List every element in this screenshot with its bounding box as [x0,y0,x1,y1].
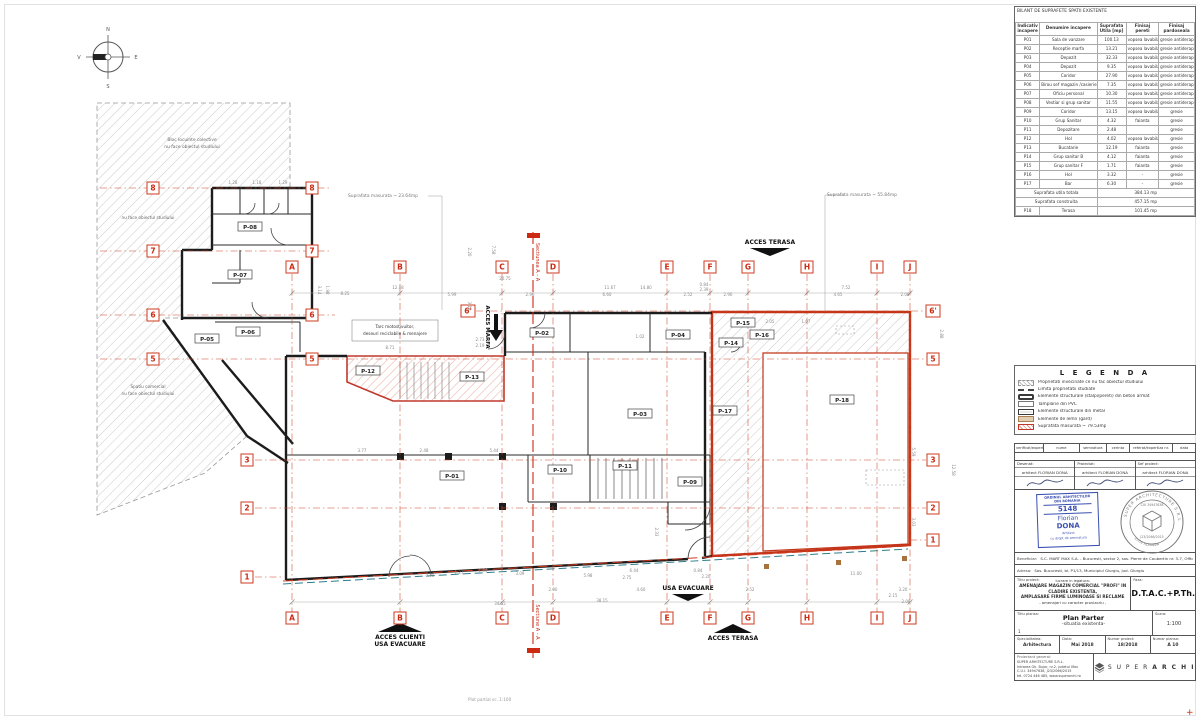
dim-label: 20.75 [499,276,511,281]
table-cell: gresie antiderapanta [1159,53,1195,62]
role-column: Sef proiect:arhitect FLORIAN DONA [1136,461,1195,489]
section-label-bottom: Sectiune A - A [534,604,540,640]
grid-bubble-label-3: 3 [244,456,249,465]
grid-bubble-label-I: I [876,614,879,623]
room-label-P-08: P-08 [243,225,257,231]
verif-header: semnatura [1080,444,1107,452]
table-cell: Bucatarie [1040,143,1097,152]
dim-label: 8.25 [341,291,350,296]
project-line1: AMENAJARE MAGAZIN COMERCIAL "PROFI" IN C… [1017,583,1128,594]
table-cell: gresie antiderapanta [1159,71,1195,80]
table-cell: P18 [1016,206,1040,215]
dim-label: 2.20 [702,574,711,579]
table-cell: Vestiar si grup sanitar [1040,98,1097,107]
table-cell: gresie [1159,152,1195,161]
table-cell: gresie [1159,125,1195,134]
table-cell: gresie antiderapanta [1159,80,1195,89]
acces-clienti-2: USA EVACUARE [374,641,425,648]
dim-label: 12.58 [951,464,956,476]
dim-label: 1.29 [279,180,288,185]
table-cell: - [1126,170,1159,179]
dim-label: 2.33 [654,528,659,537]
dim-label: 34.55 [494,601,506,606]
dim-label: 5.99 [448,292,457,297]
dim-label: 3.20 [899,587,908,592]
table-cell: P08 [1016,98,1040,107]
table-cell: Bar [1040,179,1097,188]
project-line2: AMPLASARE FIRME LUMINOASE SI RECLAME [1017,594,1128,599]
table-cell: - [1126,179,1159,188]
cube-icon [1143,511,1161,531]
legend-label: Limita proprietatii studiate [1038,387,1095,392]
oar-stamp: ORDINUL ARHITECTILOR DIN ROMANIA 5148 Fl… [1036,492,1100,548]
legend-item: Suprafata masurata ~ 79.53mp [1018,424,1192,430]
dim-label: 11.00 [850,571,862,576]
table-row: P16Hol3.32-gresie [1016,170,1195,179]
table-cell: 12.19 [1097,143,1126,152]
table-cell: vopsea lavabila [1126,44,1159,53]
adresa-label: Adresa: [1017,568,1031,573]
dim-label: 4.65 [834,292,843,297]
table-cell: gresie [1159,161,1195,170]
grid-bubble-label-G: G [745,614,751,623]
role-column: Desenat:arhitect FLORIAN DONA [1015,461,1075,489]
verification-row: verificat/expertnumesemnaturacerintarefe… [1015,444,1195,453]
surface-table: Indicativ incapereDenumire incapereSupra… [1015,22,1195,216]
phase-cell: Faza: D.T.A.C.+P.Th. [1131,577,1195,610]
table-cell: P13 [1016,143,1040,152]
table-row: P02Receptie marfa13.21vopsea lavabilagre… [1016,44,1195,53]
dim-label: 11.67 [604,285,616,290]
dim-label: 7.52 [842,285,851,290]
table-row: P15Grup sanitar F1.71faiantagresie [1016,161,1195,170]
grid-bubble-label-H: H [804,263,810,272]
role-label: Sef proiect: [1136,461,1195,468]
table-cell: 32.33 [1097,53,1126,62]
table-cell: P02 [1016,44,1040,53]
table-row: P05Coridor27.90vopsea lavabilagresie ant… [1016,71,1195,80]
room-label-P-11: P-11 [618,464,632,470]
acces-marfa: ACCES MARFA [484,305,490,349]
table-cell: 10.30 [1097,89,1126,98]
dim-label: 2.80 [549,587,558,592]
area-note-left: Suprafata masurata ~ 23.64mp [348,193,418,199]
grid-bubble-label-2: 2 [244,504,249,513]
grid-bubble-label-J: J [908,263,912,272]
dim-label: 2.15 [889,593,898,598]
dim-label: 5.59 [911,448,916,457]
sheet-title-row: Titlu plansa: Plan Parter -situatia exis… [1015,611,1195,636]
table-cell: vopsea lavabila [1126,35,1159,44]
acces-terasa-bottom: ACCES TERASA [708,635,759,642]
grid-bubble-label-2: 2 [930,504,935,513]
grid-bubble-label-C: C [499,614,505,623]
grid-bubble-label-E: E [664,614,669,623]
acces-terasa-bottom-arrow [714,624,752,633]
legend-swatch-dash-line [1018,389,1034,391]
legend-item: Elemente structurale din metal [1018,409,1192,415]
dim-label: 7.58 [491,246,496,255]
table-row: P03Depozit32.33vopsea lavabilagresie ant… [1016,53,1195,62]
legend-swatch-wood [1018,416,1034,422]
compass-n: N [106,27,110,33]
table-cell: faianta [1126,116,1159,125]
grid-bubble-label-3: 3 [930,456,935,465]
table-cell: 6.30 [1097,179,1126,188]
table-cell: P09 [1016,107,1040,116]
tarc-note: deseuri reciclabile & menajere [363,331,427,336]
table-cell: gresie [1159,179,1195,188]
usa-evacuare-arrow [672,594,704,601]
grid-bubble-label-7: 7 [150,247,155,256]
table-cell: Receptie marfa [1040,44,1097,53]
table-cell: P04 [1016,62,1040,71]
table-cell: Birou sef magazin /casierie [1040,80,1097,89]
table-cell: P14 [1016,152,1040,161]
table-cell: P12 [1016,134,1040,143]
terrace-zone [712,312,910,569]
dim-label: 2.08 [901,292,910,297]
dim-label: 2.52 [746,587,755,592]
dim-label: 1.84 [479,568,488,573]
role-label: Proiectat: [1075,461,1134,468]
legend-swatch-concrete [1018,394,1034,400]
compass-v: V [77,55,81,61]
dim-label: 14.80 [640,285,652,290]
dim-label: 2.39 [700,287,709,292]
table-cell: Sala de vanzare [1040,35,1097,44]
table-cell: gresie [1159,107,1195,116]
room-label-P-05: P-05 [200,337,214,343]
grid-bubble-label-J: J [908,614,912,623]
dim-label: 8.71 [386,345,395,350]
project-title-row: Titlu proiect: lucrare in legatura: AMEN… [1015,577,1195,611]
dim-label: 1.07 [802,319,811,324]
sheet-title-line2: -situatia existenta- [1017,622,1150,627]
table-cell: 1.71 [1097,161,1126,170]
dim-label: 2.48 [420,448,429,453]
grid-bubble-label-B: B [397,614,403,623]
table-cell: P06 [1016,80,1040,89]
table-cell: gresie [1159,116,1195,125]
table-cell: Grup Sanitar [1040,116,1097,125]
floor-plan: AABBCCDDEEFFGGHHIIJJ8877665556'6'332211P… [0,0,1012,720]
table-cell: 2.48 [1097,125,1126,134]
verif-header: nume [1044,444,1080,452]
table-cell: 100.13 [1097,35,1126,44]
grid-bubble-label-5: 5 [930,355,935,364]
spec-cell: Numar plansa:A 10 [1151,636,1195,653]
table-row: P08Vestiar si grup sanitar11.55vopsea la… [1016,98,1195,107]
table-cell: P03 [1016,53,1040,62]
spec-cell: Data:Mai 2018 [1060,636,1105,653]
room-label-P-07: P-07 [233,273,247,279]
room-label-P-01: P-01 [445,474,459,480]
table-cell: gresie antiderapanta [1159,98,1195,107]
dim-label: 2.20 [467,248,472,257]
dim-label: 2.90 [724,292,733,297]
tarc-note: Tarc motostivuitor, [374,324,414,329]
table-cell: 27.90 [1097,71,1126,80]
surface-table-title: BILANT DE SUPRAFETE SPATII EXISTENTE [1015,7,1195,19]
table-cell: P05 [1016,71,1040,80]
grid-bubble-label-1: 1 [930,536,935,545]
grid-bubble-label-A: A [289,263,295,272]
verif-header: cerinta [1107,444,1130,452]
table-cell: Hol [1040,170,1097,179]
legend-label: Elemente de lemn (gard) [1038,417,1092,422]
stamp-reg: J23/2066/2015 [1139,535,1163,539]
grid-bubble-label-6: 6 [150,311,155,320]
grid-bubble-label-6: 6 [309,311,314,320]
logo-cell: S U P E R A R C H I [1094,654,1195,680]
table-header: Indicativ incapere [1016,23,1040,36]
table-cell: Grup sanitar F [1040,161,1097,170]
room-label-P-02: P-02 [535,331,549,337]
grid-bubble-label-5: 5 [150,355,155,364]
table-cell: 101.45 mp [1097,206,1195,215]
oar-number: 5148 [1043,503,1091,515]
table-cell: P10 [1016,116,1040,125]
table-cell: faianta [1126,143,1159,152]
table-total-row: Suprafata utila totala384.13 mp [1016,188,1195,197]
neighbor-note: Bloc locuinte colective [167,137,217,143]
dim-label: 2.88 [939,330,944,339]
table-cell: gresie [1159,134,1195,143]
dim-label: 5.44 [490,448,499,453]
table-total-row: Suprafata construita457.15 mp [1016,197,1195,206]
dim-label: 2.52 [684,292,693,297]
legend-label: Elemente structurale (stalpi/pereti) din… [1038,394,1150,399]
specs-row: Specialitatea:ArhitecturaData:Mai 2018Nu… [1015,636,1195,654]
table-header: Finisaj pardoseala [1159,23,1195,36]
dim-label: 3.03 [911,518,916,527]
scale-label: Scara: [1153,611,1195,617]
surface-table-box: BILANT DE SUPRAFETE SPATII EXISTENTE Ind… [1014,6,1196,217]
table-row: P14Grup sanitar B4.12faiantagresie [1016,152,1195,161]
table-cell: Hol [1040,134,1097,143]
designer-row: Proiectant general: SUPER ARHITECTURE S.… [1015,654,1195,680]
acces-clienti-1: ACCES CLIENTI [375,634,425,641]
room-label-P-03: P-03 [633,412,647,418]
table-cell: 13.21 [1097,44,1126,53]
compass-s: S [106,84,109,90]
dim-label: 38.15 [596,598,608,603]
legend: L E G E N D A Proprietati invecinate ce … [1014,365,1196,436]
table-cell: 9.35 [1097,62,1126,71]
table-cell: 4.12 [1097,152,1126,161]
table-cell: P11 [1016,125,1040,134]
table-cell: Terasa [1040,206,1097,215]
table-cell: Suprafata utila totala [1016,188,1098,197]
neighbor-note: nu face obiectul studiului [164,144,219,150]
phase-value: D.T.A.C.+P.Th. [1131,589,1195,598]
neighbor-properties [97,103,290,515]
dim-label: 3.77 [358,448,367,453]
table-cell: Depozit [1040,62,1097,71]
stamp-cui: CUI 34947638 [1141,503,1164,507]
table-cell: 13.15 [1097,107,1126,116]
company-round-stamp: SUPER ARCHITECTURE S.R.L. ILFOV ROMANIA … [1117,487,1187,557]
room-label-P-10: P-10 [553,468,567,474]
compass-e: E [134,55,137,61]
legend-item: Proprietati invecinate ce nu fac obiectu… [1018,380,1192,386]
designer-line: tel. 0724 446 485, www.superarchi.ro [1017,674,1091,679]
project-line3: - amenajari cu caracter provizoriu - [1017,600,1128,605]
dim-label: 2.96 [526,292,535,297]
table-row: P07Oficiu personal10.30vopsea lavabilagr… [1016,89,1195,98]
table-cell: gresie antiderapanta [1159,44,1195,53]
legend-label: Tamplarie din PVC [1038,402,1077,407]
table-row: P09Coridor13.15vopsea lavabilagresie [1016,107,1195,116]
room-label-P-13: P-13 [465,375,479,381]
table-cell: faianta [1126,161,1159,170]
verif-header: data [1173,444,1195,452]
table-row: P13Bucatarie12.19faiantagresie [1016,143,1195,152]
table-cell: gresie antiderapanta [1159,62,1195,71]
table-cell: gresie antiderapanta [1159,35,1195,44]
table-cell: gresie [1159,143,1195,152]
table-cell: gresie [1159,170,1195,179]
room-label-P-17: P-17 [718,409,732,415]
table-cell: Coridor [1040,71,1097,80]
beneficiar-label: Beneficiar: [1017,556,1037,561]
sheet-title-cell: Titlu plansa: Plan Parter -situatia exis… [1015,611,1153,635]
legend-swatch-metal [1018,409,1034,415]
scale-value: 1:100 [1153,621,1195,627]
grid-bubble-label-1: 1 [244,573,249,582]
grid-bubble-label-B: B [397,263,403,272]
dim-label: 6.60 [603,292,612,297]
superarchi-logo-text: S U P E R A R C H I [1108,664,1195,671]
legend-item: Elemente de lemn (gard) [1018,416,1192,422]
phase-label: Faza: [1131,577,1195,583]
role-name: arhitect FLORIAN DONA [1075,468,1134,477]
table-cell: gresie antiderapanta [1159,89,1195,98]
table-row: P11Depozitare2.48gresie [1016,125,1195,134]
registration-mark: + [1186,708,1194,718]
spacer-row [1015,453,1195,461]
room-label-P-04: P-04 [671,333,685,339]
table-row: P10Grup Sanitar4.32faiantagresie [1016,116,1195,125]
table-cell: 7.35 [1097,80,1126,89]
dim-label: 1.27 [455,570,464,575]
dim-label: 1.28 [229,180,238,185]
legend-label: Elemente structurale din metal [1038,409,1105,414]
grid-bubble-label-C: C [499,263,505,272]
grid-bubble-label-H: H [804,614,810,623]
adresa-row: Adresa: Sos. Bucuresti, bl. P1/13, Munic… [1015,565,1195,577]
legend-swatch-pvc [1018,401,1034,407]
section-label-top: Sectiunea A - A [534,243,540,282]
dim-label: 0.70 [426,573,435,578]
table-cell: Oficiu personal [1040,89,1097,98]
role-name: arhitect FLORIAN DONA [1015,468,1074,477]
room-label-P-18: P-18 [835,398,849,404]
table-cell: vopsea lavabila [1126,134,1159,143]
adresa-value: Sos. Bucuresti, bl. P1/13, Municipiul Gi… [1034,568,1144,573]
legend-item: Tamplarie din PVC [1018,401,1192,407]
dim-label: 1.98 [325,286,330,295]
grid-bubble-label-F: F [707,614,712,623]
grid-bubble-label-D: D [550,614,556,623]
dim-label: 6.44 [630,568,639,573]
table-cell: vopsea lavabila [1126,62,1159,71]
room-label-P-06: P-06 [241,330,255,336]
table-cell: 384.13 mp [1097,188,1195,197]
oar-note: cu drept de semnatura [1039,535,1099,541]
table-cell: P07 [1016,89,1040,98]
table-cell: Grup sanitar B [1040,152,1097,161]
dim-label: 1.18 [253,180,262,185]
table-cell [1126,125,1159,134]
legend-item: Elemente structurale (stalpi/pereti) din… [1018,394,1192,400]
footer-note: Plot partial sc. 1:100 [468,697,511,702]
grid-bubble-label-F: F [707,263,712,272]
dim-label: 2.73 [476,337,485,342]
table-cell: P16 [1016,170,1040,179]
table-row: P17Bar6.30-gresie [1016,179,1195,188]
room-label-P-15: P-15 [736,321,750,327]
table-terrace-row: P18Terasa101.45 mp [1016,206,1195,215]
scale-cell: Scara: 1:100 [1153,611,1195,635]
table-cell: vopsea lavabila [1126,53,1159,62]
designer-cell: Proiectant general: SUPER ARHITECTURE S.… [1015,654,1094,680]
title-block: verificat/expertnumesemnaturacerintarefe… [1014,443,1196,681]
dim-label: 2.75 [623,575,632,580]
verif-header: referat/expertiza nr. [1130,444,1174,452]
roles-row: Desenat:arhitect FLORIAN DONAProiectat:a… [1015,461,1195,490]
grid-bubble-label-A: A [289,614,295,623]
drawing-sheet: AABBCCDDEEFFGGHHIIJJ8877665556'6'332211P… [0,0,1200,720]
table-header: Suprafata Utila [mp] [1097,23,1126,36]
legend-item: Limita proprietatii studiate [1018,387,1192,392]
table-header: Denumire incapere [1040,23,1097,36]
verif-header: verificat/expert [1015,444,1044,452]
legend-swatch-hatch-gray [1018,380,1034,386]
table-cell: 11.55 [1097,98,1126,107]
table-cell: P15 [1016,161,1040,170]
stamps-row: ORDINUL ARHITECTILOR DIN ROMANIA 5148 Fl… [1015,490,1195,553]
sheet-index: 1 [1018,629,1021,634]
superarchi-logo-icon [1094,662,1105,673]
table-row: P04Depozit9.35vopsea lavabilagresie anti… [1016,62,1195,71]
table-cell: faianta [1126,152,1159,161]
room-label-P-12: P-12 [361,369,375,375]
table-cell: 3.32 [1097,170,1126,179]
table-cell: 457.15 mp [1097,197,1195,206]
grid-bubble-label-G: G [745,263,751,272]
spec-value: 18/2018 [1106,642,1150,649]
role-column: Proiectat:arhitect FLORIAN DONA [1075,461,1135,489]
grid-bubble-label-D: D [550,263,556,272]
dim-label: 2.05 [766,319,775,324]
table-header: Finisaj pereti [1126,23,1159,36]
neighbor-note: nu face obiectul studiului [122,391,175,396]
table-row: P12Hol4.02vopsea lavabilagresie [1016,134,1195,143]
dim-label: 5.98 [584,573,593,578]
signature [1015,477,1074,489]
table-cell: vopsea lavabila [1126,89,1159,98]
usa-evacuare: USA EVACUARE [662,585,713,592]
dim-label: 4.60 [637,587,646,592]
spec-cell: Specialitatea:Arhitectura [1015,636,1060,653]
grid-bubble-label-5: 5 [309,355,314,364]
grid-bubble-label-E: E [664,263,669,272]
dim-label: 3.09 [516,571,525,576]
dim-label: 2.08 [902,599,911,604]
table-row: P06Birou sef magazin /casierie7.35vopsea… [1016,80,1195,89]
